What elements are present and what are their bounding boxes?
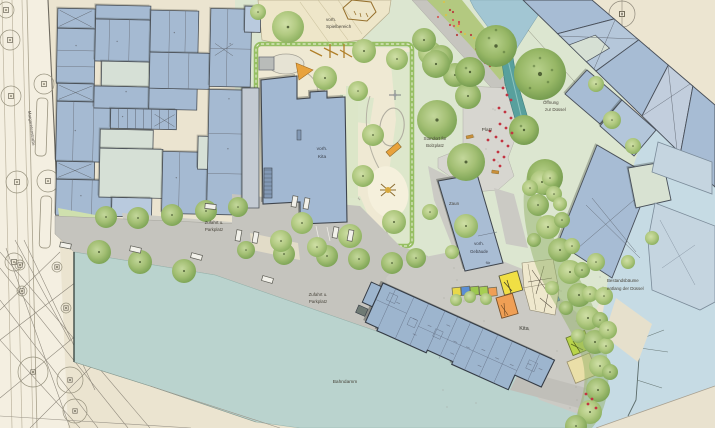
svg-text:vorh.: vorh. bbox=[474, 241, 484, 246]
svg-text:Öffnung: Öffnung bbox=[543, 100, 559, 105]
svg-text:Kita: Kita bbox=[318, 154, 327, 160]
svg-text:Platz: Platz bbox=[482, 127, 493, 133]
svg-text:für: für bbox=[486, 260, 491, 265]
svg-text:Bolzplatz: Bolzplatz bbox=[426, 143, 444, 148]
svg-text:Bestandsbäume: Bestandsbäume bbox=[607, 278, 639, 283]
svg-text:Gebäude: Gebäude bbox=[470, 249, 489, 254]
svg-text:Spielbereich: Spielbereich bbox=[326, 24, 352, 29]
svg-text:vorh.: vorh. bbox=[317, 146, 328, 152]
svg-text:zur Düssel: zur Düssel bbox=[545, 107, 566, 112]
svg-text:Zufahrt u.: Zufahrt u. bbox=[205, 220, 224, 225]
svg-text:Standort für: Standort für bbox=[424, 136, 447, 141]
svg-text:Parkplatz: Parkplatz bbox=[309, 299, 327, 304]
svg-text:entlang der Düssel: entlang der Düssel bbox=[607, 286, 644, 291]
svg-text:Kita: Kita bbox=[519, 326, 529, 332]
svg-text:vorh.: vorh. bbox=[326, 17, 336, 22]
svg-text:Parkplatz: Parkplatz bbox=[205, 227, 223, 232]
svg-text:Bahndamm: Bahndamm bbox=[333, 379, 358, 385]
svg-text:Zaun: Zaun bbox=[449, 201, 460, 206]
svg-text:Zufahrt u.: Zufahrt u. bbox=[309, 292, 328, 297]
